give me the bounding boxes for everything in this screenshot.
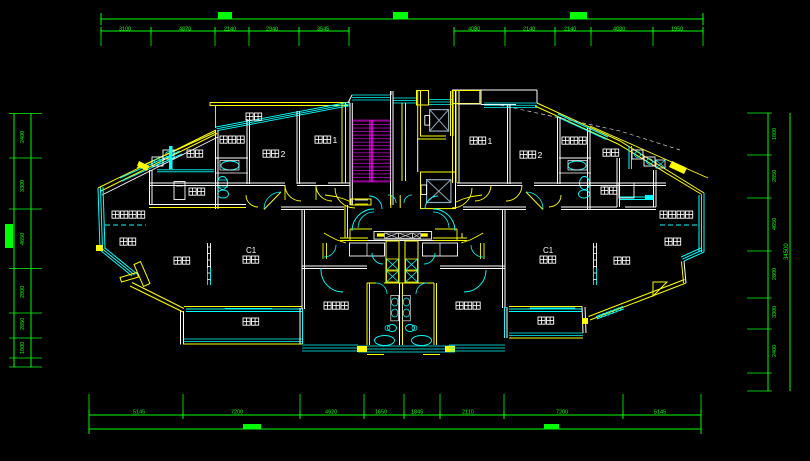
svg-text:34500: 34500 xyxy=(784,243,790,260)
svg-text:2850: 2850 xyxy=(772,170,778,182)
svg-text:2800: 2800 xyxy=(772,268,778,280)
svg-text:2850: 2850 xyxy=(20,318,26,330)
svg-text:1950: 1950 xyxy=(671,27,683,33)
svg-text:2940: 2940 xyxy=(266,27,278,33)
svg-text:3100: 3100 xyxy=(119,27,131,33)
svg-text:1: 1 xyxy=(333,135,338,145)
svg-text:3545: 3545 xyxy=(317,27,329,33)
svg-text:4650: 4650 xyxy=(772,218,778,230)
svg-text:2: 2 xyxy=(281,149,286,159)
svg-text:4080: 4080 xyxy=(613,27,625,33)
svg-text:3300: 3300 xyxy=(20,180,26,192)
svg-text:2400: 2400 xyxy=(20,131,26,143)
svg-text:1845: 1845 xyxy=(411,410,423,416)
svg-text:2: 2 xyxy=(538,150,543,160)
svg-text:4650: 4650 xyxy=(20,233,26,245)
svg-text:1800: 1800 xyxy=(772,128,778,140)
svg-text:7200: 7200 xyxy=(231,410,243,416)
svg-text:4920: 4920 xyxy=(325,410,337,416)
svg-text:5145: 5145 xyxy=(133,410,145,416)
svg-text:C1: C1 xyxy=(543,246,554,255)
svg-text:2800: 2800 xyxy=(20,286,26,298)
svg-text:1650: 1650 xyxy=(375,410,387,416)
svg-text:C1: C1 xyxy=(246,246,257,255)
svg-text:4080: 4080 xyxy=(468,27,480,33)
svg-text:2140: 2140 xyxy=(224,27,236,33)
svg-text:4870: 4870 xyxy=(179,27,191,33)
svg-text:3300: 3300 xyxy=(772,306,778,318)
svg-text:1: 1 xyxy=(488,136,493,146)
svg-text:2400: 2400 xyxy=(772,345,778,357)
svg-text:2140: 2140 xyxy=(523,27,535,33)
svg-text:2110: 2110 xyxy=(462,410,474,416)
svg-text:5145: 5145 xyxy=(654,410,666,416)
svg-text:2140: 2140 xyxy=(564,27,576,33)
svg-text:1800: 1800 xyxy=(20,342,26,354)
svg-text:7200: 7200 xyxy=(556,410,568,416)
